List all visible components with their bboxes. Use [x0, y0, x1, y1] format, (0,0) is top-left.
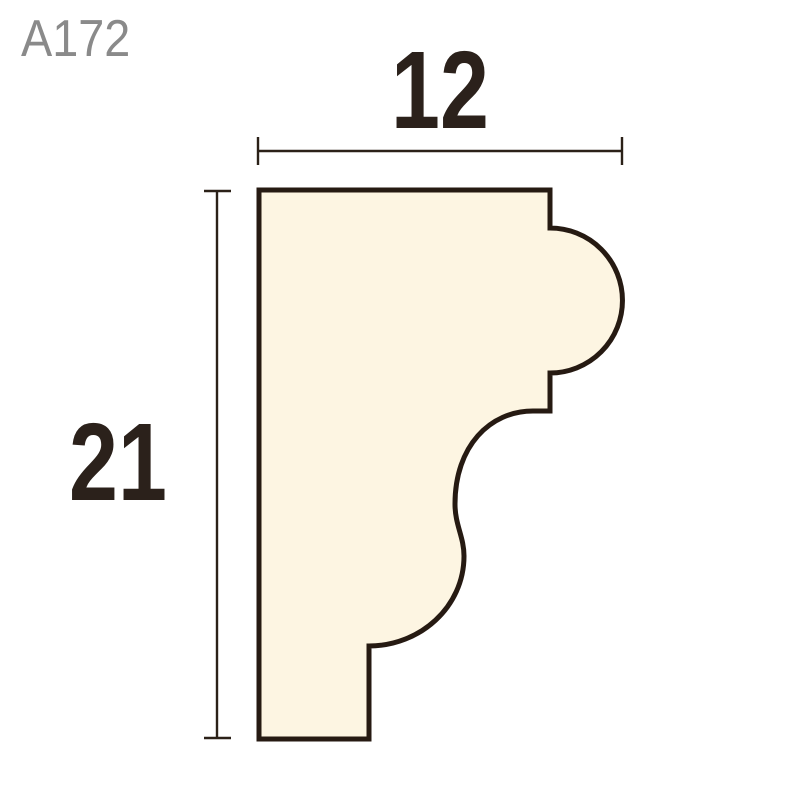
- width-dimension-value: 12: [360, 36, 520, 146]
- product-code-label: A172: [21, 13, 130, 65]
- profile-outline-shape: [259, 190, 622, 739]
- height-dimension: [204, 191, 231, 738]
- moulding-profile-diagram: A172 12 21: [0, 0, 800, 800]
- height-dimension-value: 21: [38, 408, 198, 518]
